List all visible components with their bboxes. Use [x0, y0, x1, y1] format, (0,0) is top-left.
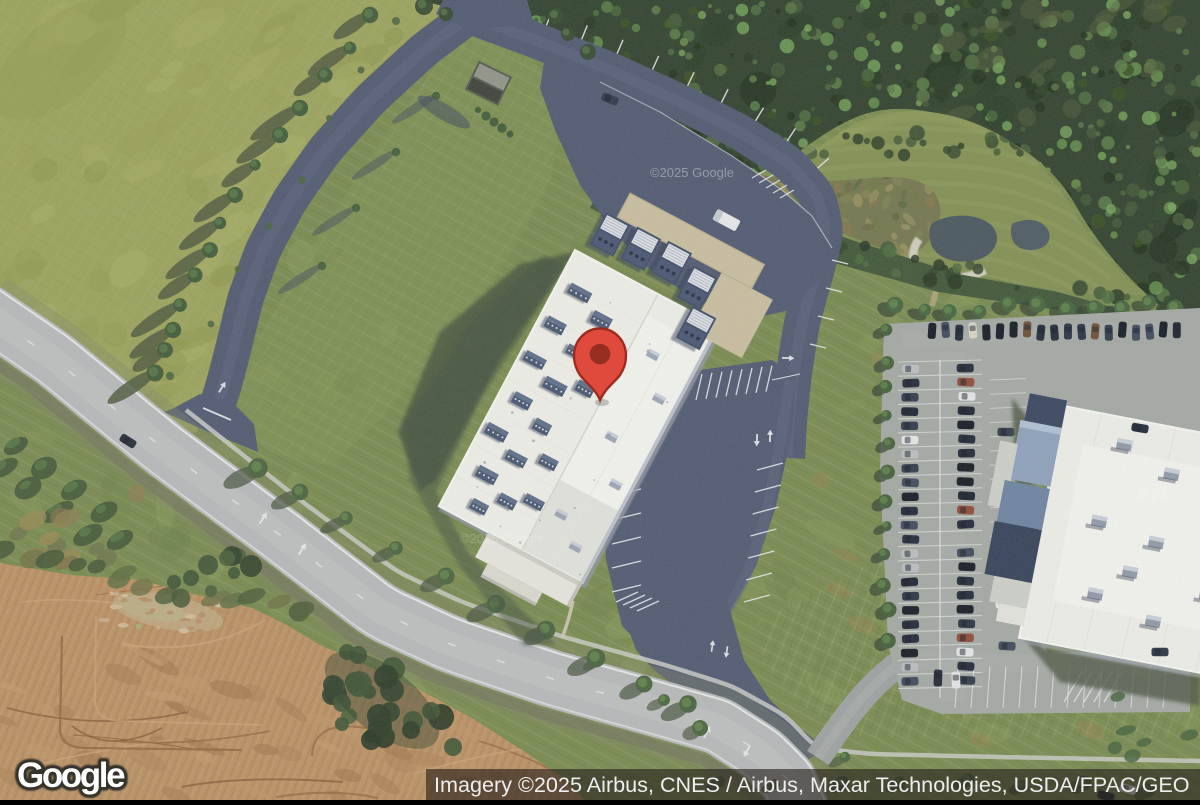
svg-text:Google: Google [17, 756, 125, 795]
svg-text:©2025 Google: ©2025 Google [460, 531, 544, 546]
svg-text:Imagery ©2025 Airbus, CNES / A: Imagery ©2025 Airbus, CNES / Airbus, Max… [434, 772, 1190, 797]
svg-text:© 20: © 20 [1138, 486, 1166, 501]
svg-text:©2025 Google: ©2025 Google [650, 165, 734, 180]
